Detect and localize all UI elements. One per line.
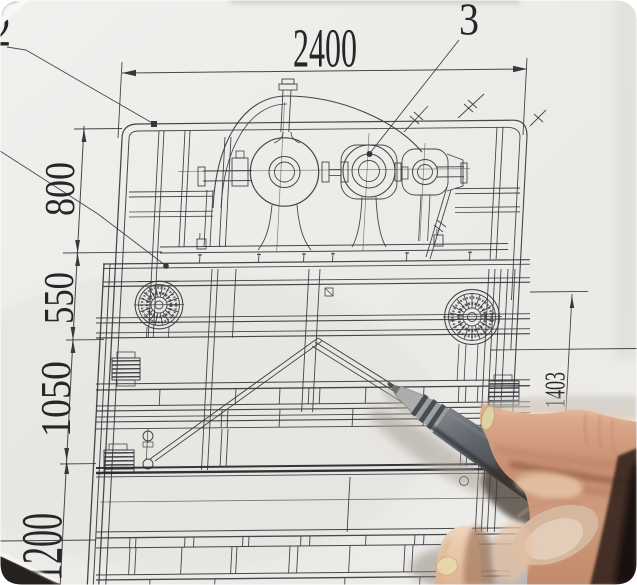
svg-text:3: 3 bbox=[459, 0, 479, 45]
svg-text:2400: 2400 bbox=[293, 18, 357, 79]
svg-text:1050: 1050 bbox=[34, 361, 80, 437]
svg-text:800: 800 bbox=[38, 162, 84, 216]
svg-text:550: 550 bbox=[37, 272, 83, 324]
